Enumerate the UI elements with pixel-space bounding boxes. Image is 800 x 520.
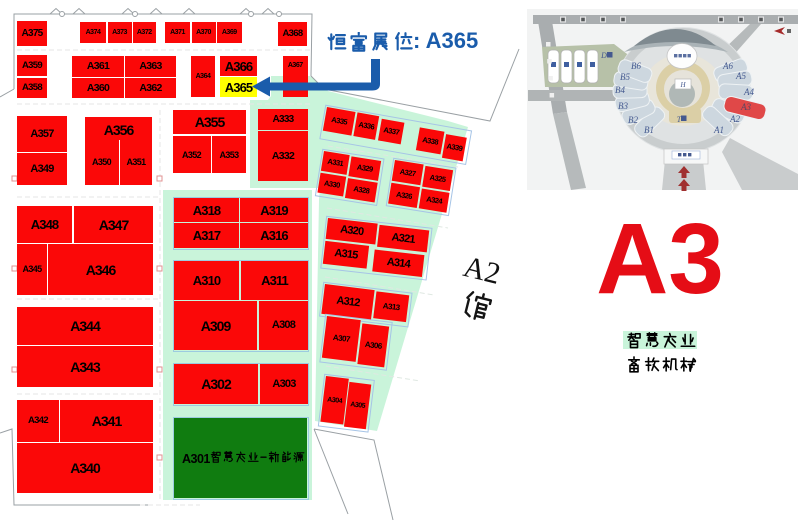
svg-text:D: D: [600, 51, 607, 60]
svg-text:A2: A2: [729, 114, 740, 124]
svg-text:B5: B5: [620, 72, 630, 82]
svg-text:B2: B2: [628, 115, 638, 125]
svg-text:A301: A301: [182, 452, 210, 466]
svg-text:B6: B6: [631, 61, 641, 71]
svg-text:B3: B3: [618, 101, 628, 111]
svg-text:H: H: [679, 81, 686, 89]
svg-text:A6: A6: [722, 61, 733, 71]
svg-text:A5: A5: [735, 71, 746, 81]
svg-text:A1: A1: [713, 125, 724, 135]
svg-text:A3: A3: [740, 102, 751, 112]
svg-text:B1: B1: [644, 125, 654, 135]
svg-text:A4: A4: [743, 87, 754, 97]
svg-text:B4: B4: [615, 85, 625, 95]
